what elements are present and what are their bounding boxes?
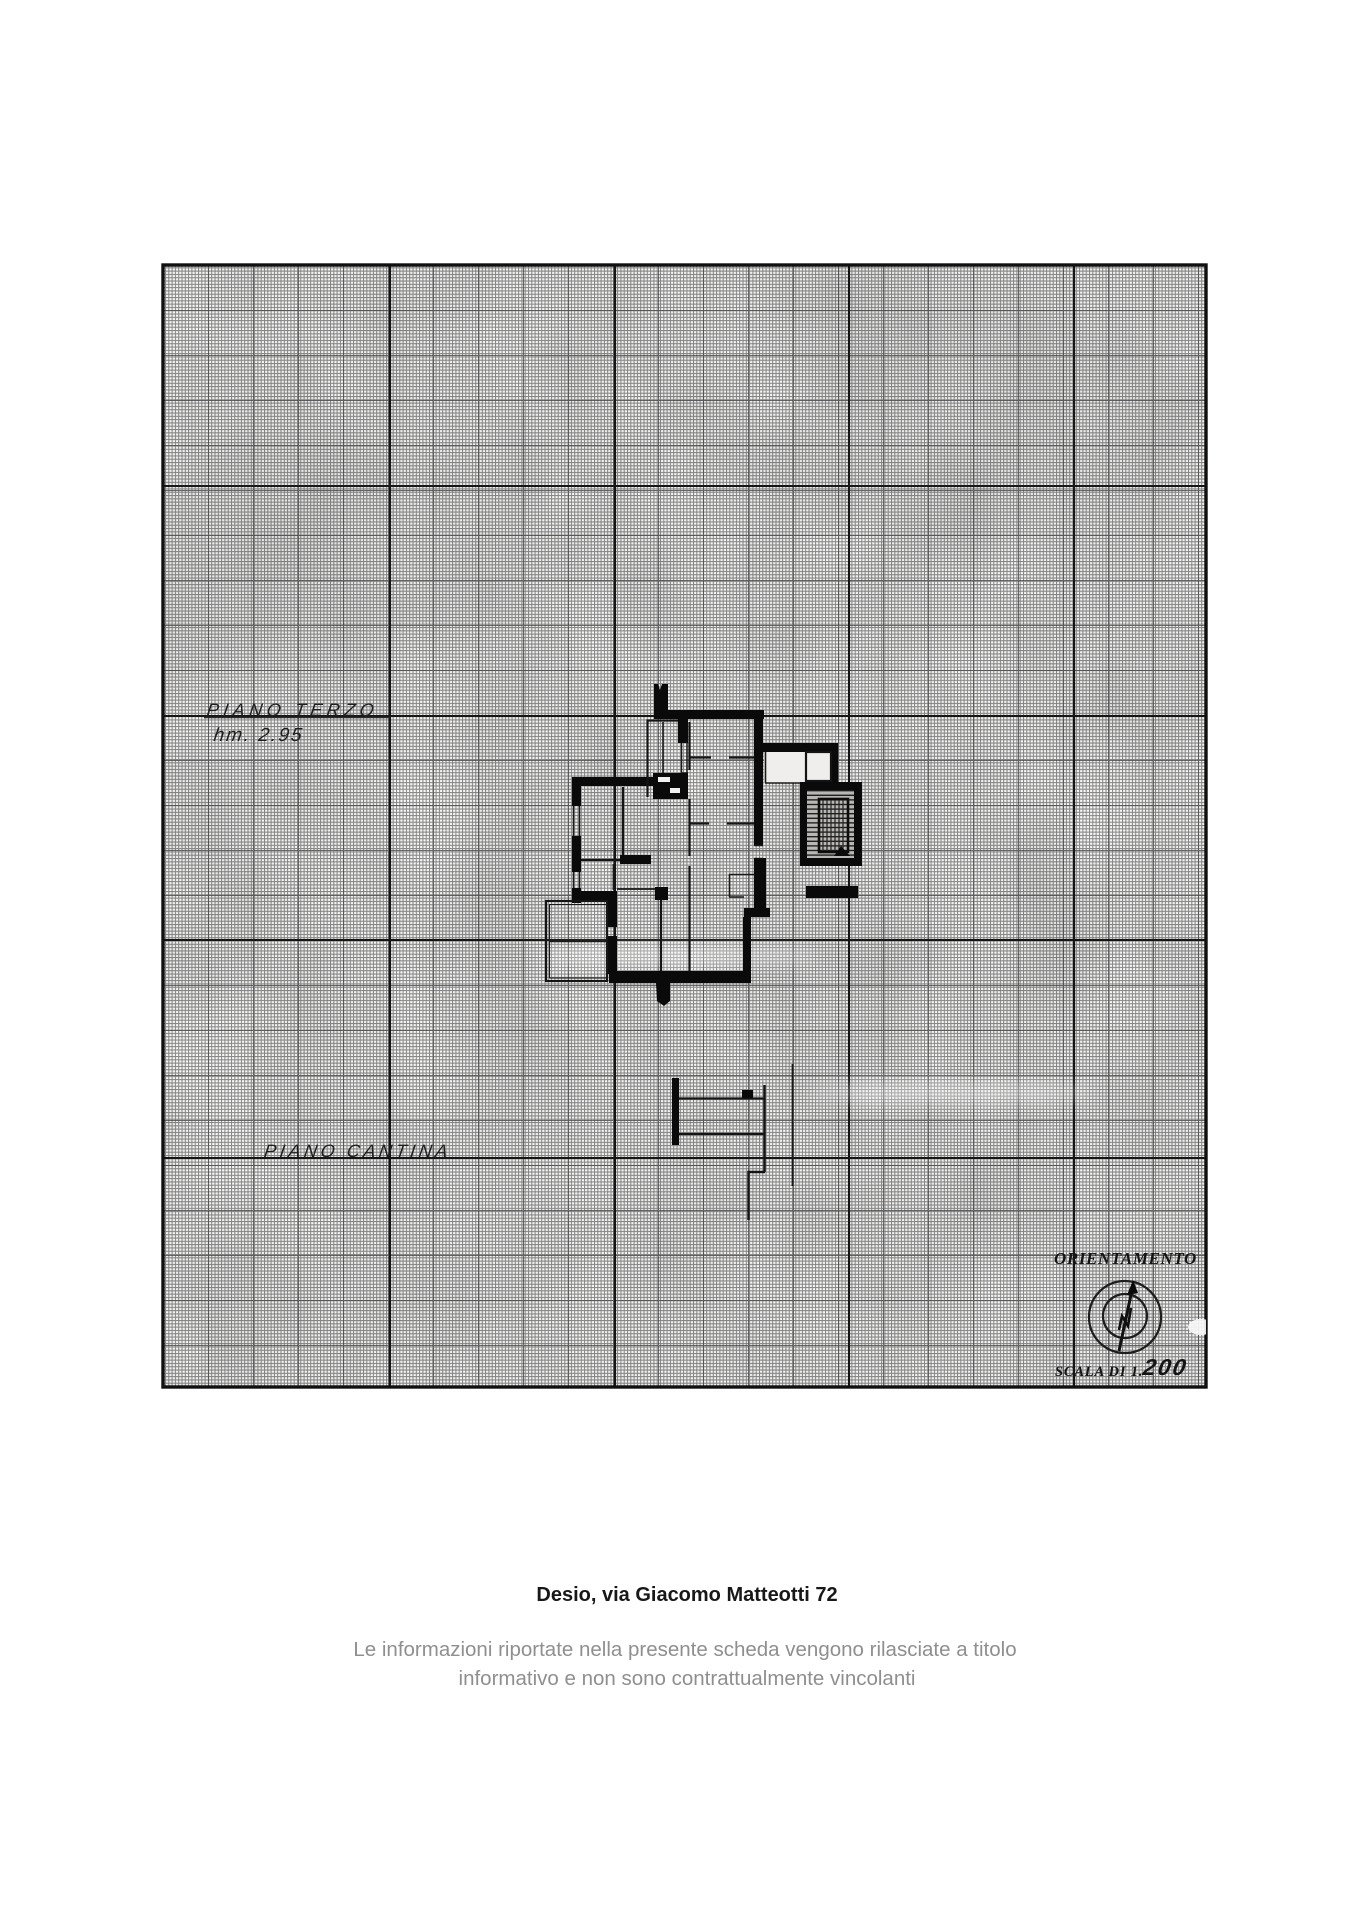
svg-text:hm. 2.95: hm. 2.95 — [212, 725, 305, 746]
svg-text:200: 200 — [1140, 1354, 1190, 1380]
svg-text:ORIENTAMENTO: ORIENTAMENTO — [1054, 1249, 1197, 1268]
svg-text:PIANO CANTINA: PIANO CANTINA — [263, 1141, 453, 1161]
svg-text:informativo e non sono contrat: informativo e non sono contrattualmente … — [459, 1667, 916, 1690]
svg-text:SCALA DI 1.: SCALA DI 1. — [1055, 1364, 1143, 1380]
svg-text:Le informazioni riportate nell: Le informazioni riportate nella presente… — [353, 1638, 1016, 1661]
svg-text:Desio, via Giacomo Matteotti 7: Desio, via Giacomo Matteotti 72 — [536, 1584, 837, 1606]
